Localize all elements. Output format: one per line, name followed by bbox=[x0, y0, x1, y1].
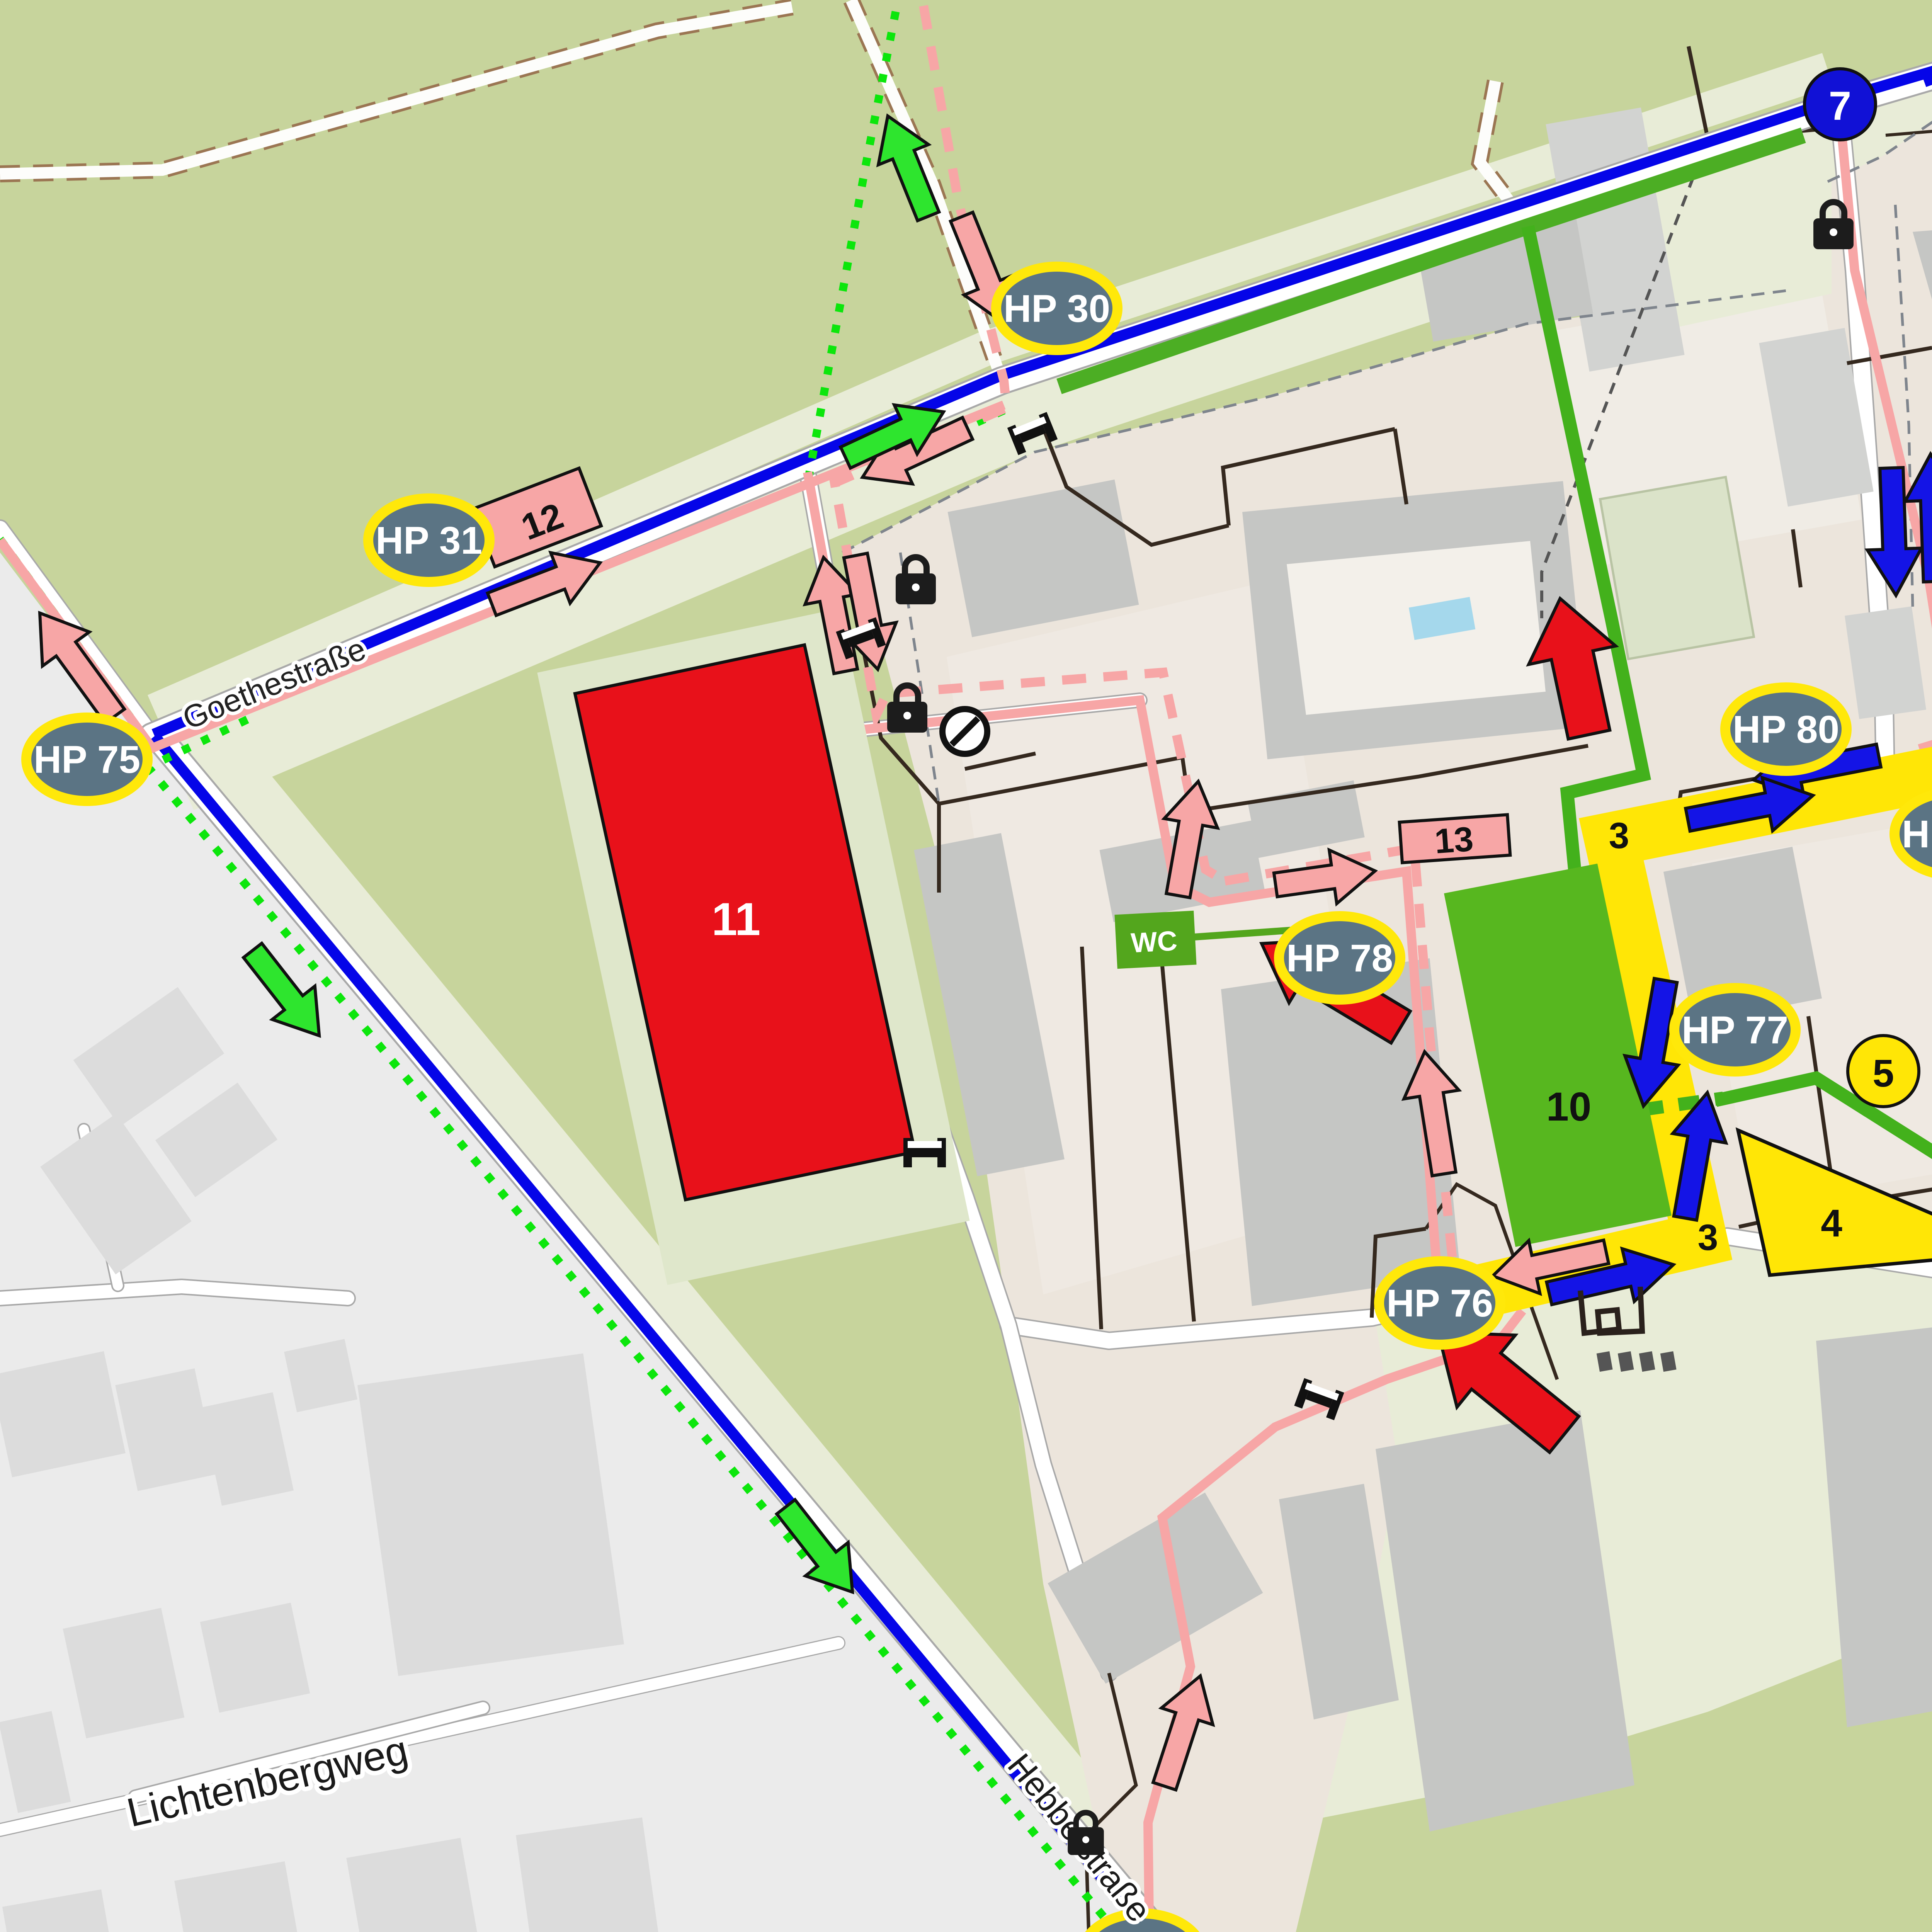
svg-text:3: 3 bbox=[1609, 815, 1629, 856]
svg-text:13: 13 bbox=[1433, 820, 1475, 861]
svg-text:3: 3 bbox=[1698, 1217, 1718, 1258]
svg-text:4: 4 bbox=[1821, 1202, 1842, 1245]
svg-text:HP 77: HP 77 bbox=[1682, 1009, 1788, 1052]
svg-text:10: 10 bbox=[1546, 1084, 1592, 1129]
svg-text:HP 31: HP 31 bbox=[376, 519, 482, 562]
svg-text:HP 80: HP 80 bbox=[1733, 708, 1839, 751]
svg-text:11: 11 bbox=[712, 893, 761, 945]
svg-text:5: 5 bbox=[1872, 1052, 1894, 1095]
svg-text:7: 7 bbox=[1829, 83, 1851, 129]
svg-text:HP 79: HP 79 bbox=[1902, 813, 1932, 856]
svg-text:HP 30: HP 30 bbox=[1003, 287, 1110, 330]
svg-text:HP 78: HP 78 bbox=[1286, 937, 1393, 980]
svg-text:HP 76: HP 76 bbox=[1386, 1282, 1493, 1325]
svg-text:HP 75: HP 75 bbox=[34, 738, 140, 781]
svg-text:WC: WC bbox=[1130, 925, 1178, 959]
